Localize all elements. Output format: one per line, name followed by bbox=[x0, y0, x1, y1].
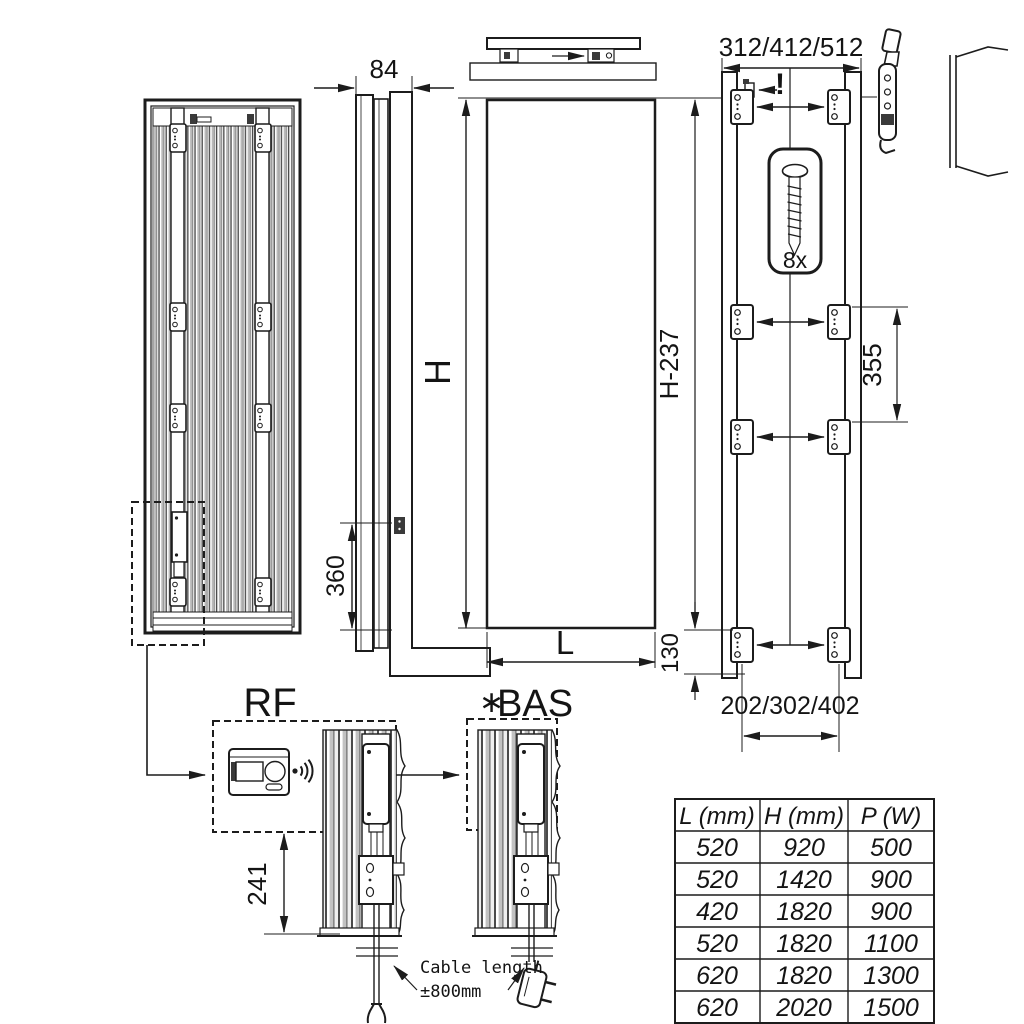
side-connector bbox=[394, 517, 405, 534]
dim-bottom-offset: 130 bbox=[657, 633, 684, 673]
cell: 1300 bbox=[863, 962, 919, 990]
top-hook-right bbox=[247, 114, 254, 124]
col-header-height: H (mm) bbox=[764, 803, 844, 830]
wall-bracket bbox=[731, 628, 753, 662]
cell: 2020 bbox=[775, 994, 832, 1022]
cell: 900 bbox=[870, 866, 912, 894]
table-row: 620 1820 1300 bbox=[696, 962, 919, 990]
table-row: 620 2020 1500 bbox=[696, 994, 919, 1022]
wall-bracket bbox=[828, 420, 850, 454]
dim-mid-spacing: 355 bbox=[857, 343, 887, 386]
mounting-bracket bbox=[255, 124, 271, 152]
rf-label: RF bbox=[243, 681, 296, 725]
mounting-bracket bbox=[170, 578, 186, 606]
col-header-power: P (W) bbox=[861, 803, 921, 830]
cell: 900 bbox=[870, 898, 912, 926]
wall-strip-top bbox=[470, 63, 656, 80]
cell: 620 bbox=[696, 962, 738, 990]
wall-bracket bbox=[828, 628, 850, 662]
wall-bracket bbox=[731, 420, 753, 454]
control-housing bbox=[518, 744, 544, 824]
dim-width-label: L bbox=[556, 624, 574, 661]
front-view bbox=[132, 100, 300, 775]
cell: 1100 bbox=[864, 930, 918, 958]
control-housing bbox=[363, 744, 389, 824]
mounting-bracket bbox=[255, 303, 271, 331]
cell: 520 bbox=[696, 866, 738, 894]
terminal-block bbox=[514, 856, 548, 904]
dim-hole-spacing: 202/302/402 bbox=[720, 692, 859, 720]
cell: 1820 bbox=[776, 962, 832, 990]
cell: 520 bbox=[696, 834, 738, 862]
cell: 1820 bbox=[776, 898, 832, 926]
cell: 1500 bbox=[863, 994, 919, 1022]
mounting-bracket bbox=[170, 404, 186, 432]
side-view: 84 360 bbox=[314, 54, 490, 676]
wall-bracket-detail bbox=[861, 29, 1008, 176]
cell: 1420 bbox=[776, 866, 832, 894]
screw-count: 8x bbox=[783, 247, 808, 273]
wall-bracket bbox=[828, 305, 850, 339]
mounting-bracket bbox=[255, 404, 271, 432]
mounting-bracket bbox=[255, 578, 271, 606]
detail-leader-arrow bbox=[147, 645, 205, 775]
rear-mounting-view: 312/412/512 ! 8x H-237 130 355 bbox=[654, 32, 908, 752]
rf-radiator-detail bbox=[317, 730, 405, 1023]
cell: 920 bbox=[783, 834, 825, 862]
warning-mark: ! bbox=[775, 68, 785, 101]
top-view bbox=[470, 38, 656, 80]
radio-waves-icon bbox=[292, 760, 312, 783]
cable-note-line2: ±800mm bbox=[420, 982, 481, 1002]
cell: 500 bbox=[870, 834, 912, 862]
diagram-canvas: 84 360 H L 312/412/512 ! bbox=[0, 0, 1024, 1024]
dim-mount-width: 312/412/512 bbox=[719, 32, 864, 62]
table-row: 420 1820 900 bbox=[696, 898, 912, 926]
dim-control-height: 241 bbox=[242, 862, 272, 905]
wall-bracket bbox=[828, 90, 850, 124]
table-row: 520 920 500 bbox=[696, 834, 912, 862]
dim-side-bottom: 360 bbox=[322, 555, 350, 597]
table-row: 520 1420 900 bbox=[696, 866, 912, 894]
rf-remote-control bbox=[229, 749, 289, 795]
top-hook-left bbox=[190, 114, 197, 124]
cable-note-line1: Cable length bbox=[420, 958, 543, 978]
screw-detail-badge: 8x bbox=[769, 149, 821, 273]
bare-wire-end bbox=[368, 1004, 386, 1023]
mounting-bracket bbox=[170, 303, 186, 331]
cell: 420 bbox=[696, 898, 738, 926]
wall-bracket bbox=[731, 90, 753, 124]
dim-depth: 84 bbox=[370, 54, 399, 84]
radiator-technical-diagram: 84 360 H L 312/412/512 ! bbox=[0, 0, 1024, 1024]
table-row: 520 1820 1100 bbox=[696, 930, 918, 958]
cell: 520 bbox=[696, 930, 738, 958]
dim-mount-height: H-237 bbox=[654, 329, 684, 400]
cell: 1820 bbox=[776, 930, 832, 958]
dim-height-label: H bbox=[417, 359, 458, 385]
col-header-length: L (mm) bbox=[679, 803, 755, 830]
spec-table: L (mm) H (mm) P (W) 520 920 500 520 1420… bbox=[675, 799, 934, 1023]
control-module-front bbox=[172, 512, 187, 562]
cell: 620 bbox=[696, 994, 738, 1022]
wall-bracket bbox=[731, 305, 753, 339]
terminal-block bbox=[359, 856, 393, 904]
mounting-bracket bbox=[170, 124, 186, 152]
